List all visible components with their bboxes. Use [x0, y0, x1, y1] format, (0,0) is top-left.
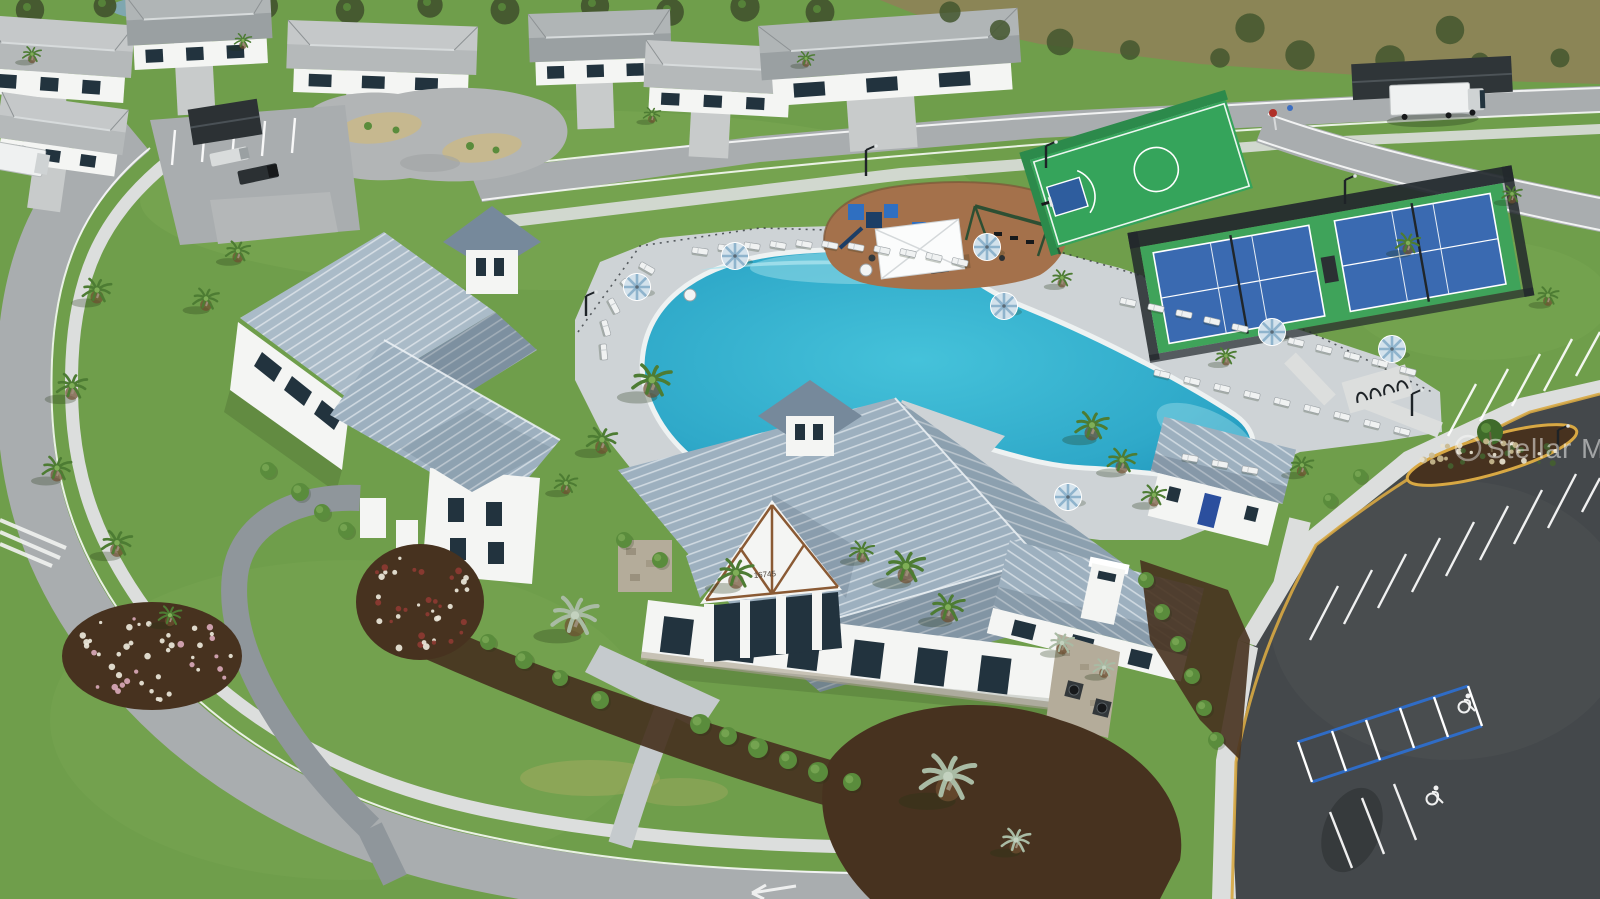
small-parking-lot	[150, 99, 360, 245]
preserve-tree	[1551, 49, 1570, 68]
street-marker	[1287, 105, 1293, 111]
white-flower-bed	[62, 602, 242, 710]
preserve-tree	[990, 20, 1010, 40]
courtyard-pier	[360, 498, 386, 538]
preserve-tree	[1047, 29, 1074, 56]
preserve-tree	[939, 1, 960, 22]
preserve-tree	[1235, 13, 1264, 42]
red-flower-bed	[356, 544, 484, 660]
watermark-text: Stellar MLS	[1486, 433, 1600, 464]
lounge-chair	[598, 344, 607, 361]
preserve-tree	[1436, 16, 1464, 44]
aerial-community-photo: 16745	[0, 0, 1600, 899]
preserve-tree	[1120, 40, 1140, 60]
preserve-tree	[1210, 48, 1230, 68]
box-truck	[1385, 82, 1485, 128]
spring-rider	[869, 255, 876, 262]
preserve-tree	[1285, 40, 1314, 69]
scene-svg: 16745	[0, 0, 1600, 899]
